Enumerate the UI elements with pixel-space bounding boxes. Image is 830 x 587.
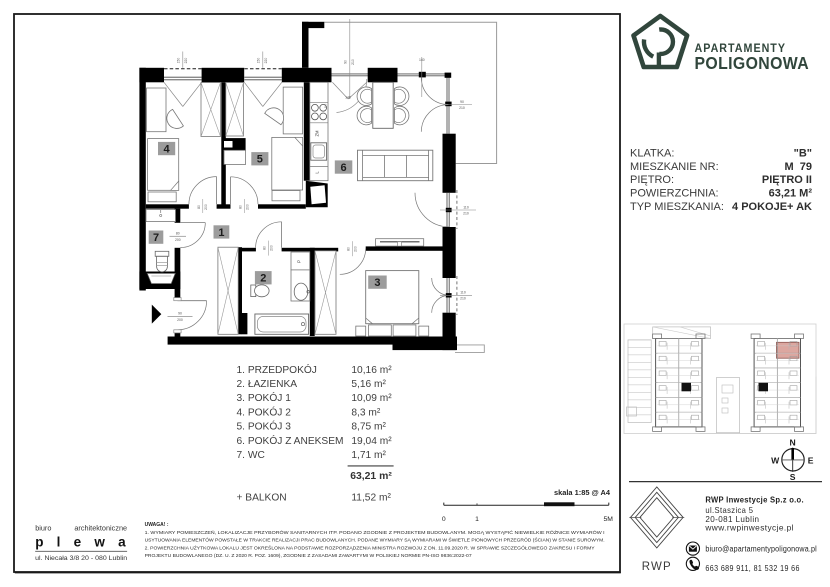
svg-text:210: 210: [463, 211, 469, 215]
svg-text:90: 90: [460, 100, 464, 104]
svg-text:3: 3: [374, 277, 380, 289]
svg-text:5. POKÓJ 3: 5. POKÓJ 3: [237, 420, 292, 433]
svg-text:140: 140: [345, 96, 351, 100]
svg-text:PIĘTRO:: PIĘTRO:: [630, 174, 674, 186]
svg-text:PIĘTRO II: PIĘTRO II: [762, 174, 812, 186]
svg-text:200: 200: [245, 204, 249, 210]
svg-text:80: 80: [238, 205, 242, 209]
svg-text:ul. Niecała 3/8 20 - 080 Lubl: ul. Niecała 3/8 20 - 080 Lublin: [35, 555, 127, 562]
svg-text:220: 220: [264, 58, 268, 64]
svg-text:210: 210: [460, 297, 466, 301]
svg-text:110: 110: [463, 205, 469, 209]
svg-text:5: 5: [257, 154, 263, 166]
svg-text:MIESZKANIE NR:: MIESZKANIE NR:: [630, 161, 719, 173]
svg-text:80: 80: [197, 205, 201, 209]
svg-text:N: N: [789, 438, 795, 448]
svg-text:8,3 m²: 8,3 m²: [351, 407, 380, 418]
svg-text:5M: 5M: [604, 516, 614, 523]
svg-text:3. POKÓJ 1: 3. POKÓJ 1: [237, 391, 292, 404]
svg-text:architektoniczne: architektoniczne: [74, 523, 127, 532]
svg-text:150: 150: [177, 58, 181, 64]
svg-text:P: P: [297, 260, 302, 263]
svg-text:+ BALKON: + BALKON: [237, 492, 287, 503]
svg-text:663 689 911, 81 532 19 66: 663 689 911, 81 532 19 66: [705, 563, 800, 573]
svg-text:2: 2: [260, 273, 266, 285]
svg-text:110: 110: [460, 291, 466, 295]
svg-text:220: 220: [184, 58, 188, 64]
svg-text:5,16 m²: 5,16 m²: [351, 379, 386, 390]
svg-text:90: 90: [343, 60, 347, 64]
svg-text:7: 7: [153, 232, 159, 244]
svg-text:skala 1:85 @ A4: skala 1:85 @ A4: [554, 490, 610, 497]
svg-text:63,21 m²: 63,21 m²: [350, 471, 392, 482]
svg-text:W: W: [771, 455, 780, 465]
svg-text:8,75 m²: 8,75 m²: [351, 422, 386, 433]
svg-text:USYTUOWANIA ELEMENTÓW POWSTAŁE: USYTUOWANIA ELEMENTÓW POWSTAŁE W TRAKCIE…: [145, 536, 605, 543]
svg-text:PROJEKTU BUDOWLANEGO (DZ. U. Z: PROJEKTU BUDOWLANEGO (DZ. U. Z 2020 R. P…: [145, 553, 472, 558]
svg-text:6: 6: [340, 162, 346, 174]
svg-text:4 POKOJE+ AK: 4 POKOJE+ AK: [732, 201, 812, 213]
svg-text:www.rwpinwestycje.pl: www.rwpinwestycje.pl: [704, 523, 794, 532]
svg-text:200: 200: [204, 204, 208, 210]
svg-text:19,04 m²: 19,04 m²: [351, 436, 392, 447]
svg-text:150: 150: [257, 58, 261, 64]
svg-text:POLIGONOWA: POLIGONOWA: [695, 53, 810, 73]
svg-text:RWP Inwestycje Sp.z o.o.: RWP Inwestycje Sp.z o.o.: [705, 494, 804, 504]
svg-text:80: 80: [263, 246, 267, 250]
svg-text:"B": "B": [794, 148, 812, 160]
svg-text:M 79: M 79: [784, 161, 812, 173]
svg-text:KLATKA:: KLATKA:: [630, 148, 674, 160]
svg-text:UWAGA! :: UWAGA! :: [145, 522, 169, 528]
svg-text:63,21 M²: 63,21 M²: [769, 188, 813, 200]
svg-text:1,71 m²: 1,71 m²: [351, 450, 386, 461]
svg-text:TYP MIESZKANIA:: TYP MIESZKANIA:: [630, 201, 724, 213]
svg-text:4: 4: [164, 144, 171, 156]
svg-text:200: 200: [177, 318, 183, 322]
svg-text:S: S: [790, 472, 796, 482]
svg-text:80: 80: [347, 247, 351, 251]
svg-text:2. ŁAZIENKA: 2. ŁAZIENKA: [237, 379, 298, 390]
svg-text:ZM: ZM: [315, 130, 320, 137]
svg-text:10,16 m²: 10,16 m²: [351, 365, 392, 376]
svg-text:1: 1: [218, 227, 224, 239]
svg-text:1: 1: [475, 516, 479, 523]
svg-text:80: 80: [176, 232, 180, 236]
svg-text:140: 140: [419, 58, 425, 62]
svg-text:6. POKÓJ Z ANEKSEM: 6. POKÓJ Z ANEKSEM: [237, 434, 344, 447]
svg-text:900: 900: [324, 103, 328, 108]
svg-text:90: 90: [178, 312, 182, 316]
svg-text:7. WC: 7. WC: [237, 450, 265, 461]
svg-text:10,09 m²: 10,09 m²: [351, 393, 392, 404]
svg-text:200: 200: [270, 245, 274, 251]
svg-text:E: E: [808, 455, 814, 465]
svg-text:210: 210: [351, 59, 355, 65]
svg-text:1. PRZEDPOKÓJ: 1. PRZEDPOKÓJ: [237, 363, 317, 376]
svg-text:200: 200: [175, 238, 181, 242]
svg-text:2. POWIERZCHNIA UŻYTKOWA LOKAL: 2. POWIERZCHNIA UŻYTKOWA LOKALU JEST OKR…: [145, 543, 596, 550]
svg-text:1. WYMIARY POMIESZCZEŃ, LOKALI: 1. WYMIARY POMIESZCZEŃ, LOKALIZACJE PRZY…: [145, 529, 605, 535]
svg-text:0: 0: [442, 516, 446, 523]
svg-text:11,52 m²: 11,52 m²: [351, 492, 391, 503]
svg-text:4. POKÓJ 2: 4. POKÓJ 2: [237, 405, 292, 418]
svg-text:210: 210: [459, 106, 465, 110]
svg-text:biuro: biuro: [35, 523, 51, 532]
svg-text:200: 200: [354, 246, 358, 252]
svg-text:biuro@apartamentypoligonowa.pl: biuro@apartamentypoligonowa.pl: [705, 545, 817, 554]
svg-text:RWP: RWP: [642, 559, 672, 573]
svg-text:POWIERZCHNIA:: POWIERZCHNIA:: [630, 188, 719, 200]
